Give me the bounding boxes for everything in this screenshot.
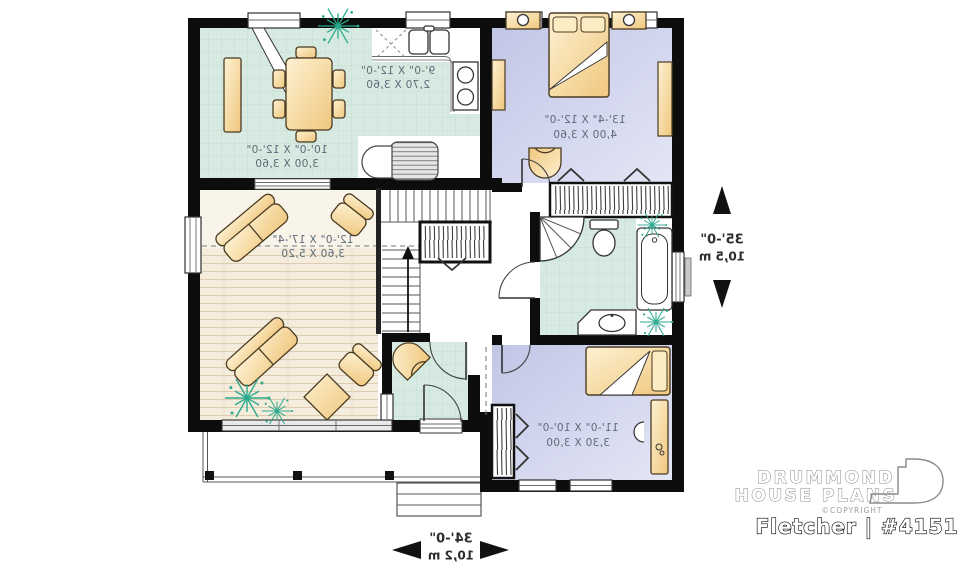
- nightstand: [612, 12, 646, 29]
- bathroom-window: [672, 252, 684, 302]
- bed-2: [586, 347, 670, 395]
- living-side-window: [185, 217, 201, 273]
- arrow-left-icon: [392, 541, 421, 559]
- living-dim-imperial: 12'-0" X 17'-4": [272, 234, 353, 246]
- bedroom2-dim-imperial: 11'-0" X 10'-0": [537, 422, 618, 434]
- depth-metric: 10,5 m: [699, 250, 745, 264]
- porch-steps: [397, 483, 481, 516]
- porch-post: [205, 471, 214, 480]
- master-dim-metric: 4,00 X 3,60: [553, 129, 617, 141]
- buffet: [224, 58, 241, 132]
- bathroom-door: [499, 262, 535, 298]
- width-imperial: 34'-0": [429, 532, 472, 547]
- dresser: [658, 62, 672, 136]
- armchair: [529, 148, 561, 178]
- breakfast-bar: [362, 142, 438, 180]
- living-dim-metric: 3,60 X 5,20: [281, 248, 345, 260]
- patio-door-frame: [248, 13, 300, 28]
- vanity-sink: [578, 310, 636, 335]
- porch-post: [385, 471, 394, 480]
- master-dim-imperial: 13'-4" X 12'-0": [544, 114, 625, 126]
- porch-deck: [203, 432, 480, 478]
- stair-closet: [420, 222, 490, 270]
- stairs: [376, 188, 492, 334]
- floor-plan-image: 10'-0" X 12'-0" 3,00 X 3,60 9'-0" X 12'-…: [0, 0, 960, 569]
- brand-line1: DRUMMOND: [757, 468, 895, 488]
- dresser: [492, 60, 505, 110]
- stove: [453, 62, 478, 110]
- plan-title: Fletcher | #4151: [756, 515, 959, 539]
- bathtub: [637, 228, 672, 310]
- kitchen-dim-imperial: 9'-0" X 12'-0": [361, 65, 435, 77]
- kitchen-dim-metric: 2,70 X 3,60: [366, 79, 430, 91]
- brand-block: DRUMMOND HOUSE PLANS ©COPYRIGHT Fletcher…: [735, 459, 959, 539]
- depth-imperial: 35'-0": [700, 233, 743, 248]
- floor-plan-canvas: 10'-0" X 12'-0" 3,00 X 3,60 9'-0" X 12'-…: [0, 0, 960, 569]
- dimension-width: 34'-0" 10,2 m: [392, 532, 509, 563]
- window-well: [685, 258, 691, 296]
- arrow-up-icon: [713, 186, 731, 214]
- arrow-down-icon: [713, 280, 731, 308]
- dining-table: [286, 58, 332, 130]
- porch: [203, 432, 482, 516]
- half-wall-railing: [255, 179, 330, 189]
- arrow-right-icon: [480, 541, 509, 559]
- dining-dim-metric: 3,00 X 3,60: [255, 158, 319, 170]
- stairs-up-arrow: [402, 246, 414, 259]
- width-metric: 10,2 m: [428, 549, 474, 563]
- dimension-depth: 35'-0" 10,5 m: [699, 186, 745, 308]
- nightstand: [506, 12, 540, 29]
- porch-post: [293, 471, 302, 480]
- dining-dim-imperial: 10'-0" X 12'-0": [246, 144, 327, 156]
- master-bed: [549, 13, 609, 97]
- bedroom2-dim-metric: 3,30 X 3,00: [546, 437, 610, 449]
